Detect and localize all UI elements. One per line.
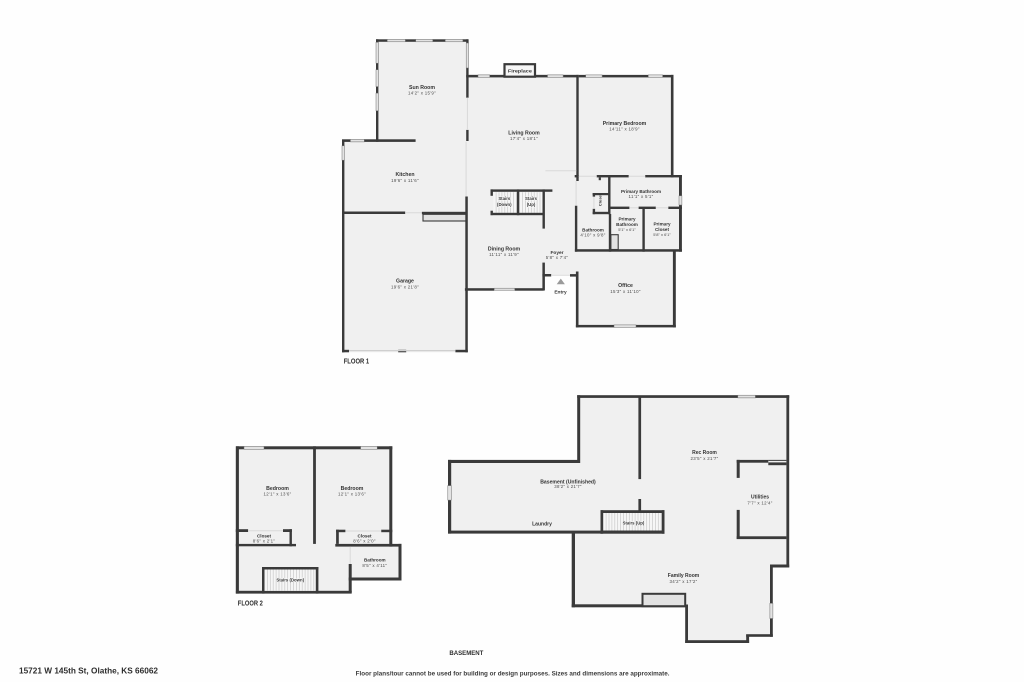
svg-text:8'5" x 4'11": 8'5" x 4'11" <box>362 563 387 568</box>
svg-text:Closet: Closet <box>598 193 603 206</box>
svg-text:Stairs (Down): Stairs (Down) <box>276 577 304 582</box>
svg-text:12'1" x 13'6": 12'1" x 13'6" <box>264 492 292 497</box>
svg-text:17'4" x 18'1": 17'4" x 18'1" <box>510 136 538 141</box>
svg-text:(Up): (Up) <box>527 202 536 207</box>
svg-text:14'2" x 15'9": 14'2" x 15'9" <box>408 90 436 95</box>
svg-text:8'6" x 2'0": 8'6" x 2'0" <box>353 538 376 543</box>
svg-text:Laundry: Laundry <box>532 522 552 528</box>
svg-text:4'10" x 9'8": 4'10" x 9'8" <box>580 233 605 238</box>
svg-text:5'8" x 6'1": 5'8" x 6'1" <box>653 232 671 237</box>
svg-text:11'11" x 11'9": 11'11" x 11'9" <box>489 252 519 257</box>
svg-text:Stairs: Stairs <box>525 196 538 201</box>
svg-text:19'6" x 11'6": 19'6" x 11'6" <box>391 178 419 183</box>
svg-text:5'1" x 6'1": 5'1" x 6'1" <box>618 227 636 232</box>
svg-text:Fireplace: Fireplace <box>508 69 533 74</box>
svg-text:34'2" x 17'2": 34'2" x 17'2" <box>670 579 698 584</box>
svg-text:BASEMENT: BASEMENT <box>449 650 483 657</box>
svg-text:(Down): (Down) <box>497 202 512 207</box>
svg-text:7'7" x 12'4": 7'7" x 12'4" <box>747 500 772 505</box>
svg-text:Stairs: Stairs <box>498 196 511 201</box>
svg-text:38'2" x 21'7": 38'2" x 21'7" <box>554 484 582 489</box>
svg-text:5'8" x 7'4": 5'8" x 7'4" <box>546 255 569 260</box>
svg-text:15'3" x 11'10": 15'3" x 11'10" <box>610 289 641 294</box>
svg-text:Entry: Entry <box>554 290 567 296</box>
svg-text:FLOOR 1: FLOOR 1 <box>344 359 370 366</box>
svg-text:Floor plans/tour cannot be use: Floor plans/tour cannot be used for buil… <box>356 670 670 677</box>
svg-text:23'5" x 21'7": 23'5" x 21'7" <box>691 456 719 461</box>
svg-text:Stairs (Up): Stairs (Up) <box>623 520 645 525</box>
svg-text:Bathroom: Bathroom <box>364 558 386 563</box>
svg-text:8'6" x 2'1": 8'6" x 2'1" <box>253 538 276 543</box>
svg-text:Primary: Primary <box>618 217 636 222</box>
svg-text:12'1" x 13'6": 12'1" x 13'6" <box>338 492 366 497</box>
svg-text:FLOOR 2: FLOOR 2 <box>238 600 263 607</box>
svg-text:Primary: Primary <box>653 222 671 227</box>
svg-text:14'11" x 18'9": 14'11" x 18'9" <box>609 127 640 132</box>
svg-text:11'1" x 5'1": 11'1" x 5'1" <box>629 194 654 199</box>
svg-text:15721 W 145th St, Olathe, KS 6: 15721 W 145th St, Olathe, KS 66062 <box>19 666 158 676</box>
svg-text:19'6" x 21'8": 19'6" x 21'8" <box>391 284 419 289</box>
